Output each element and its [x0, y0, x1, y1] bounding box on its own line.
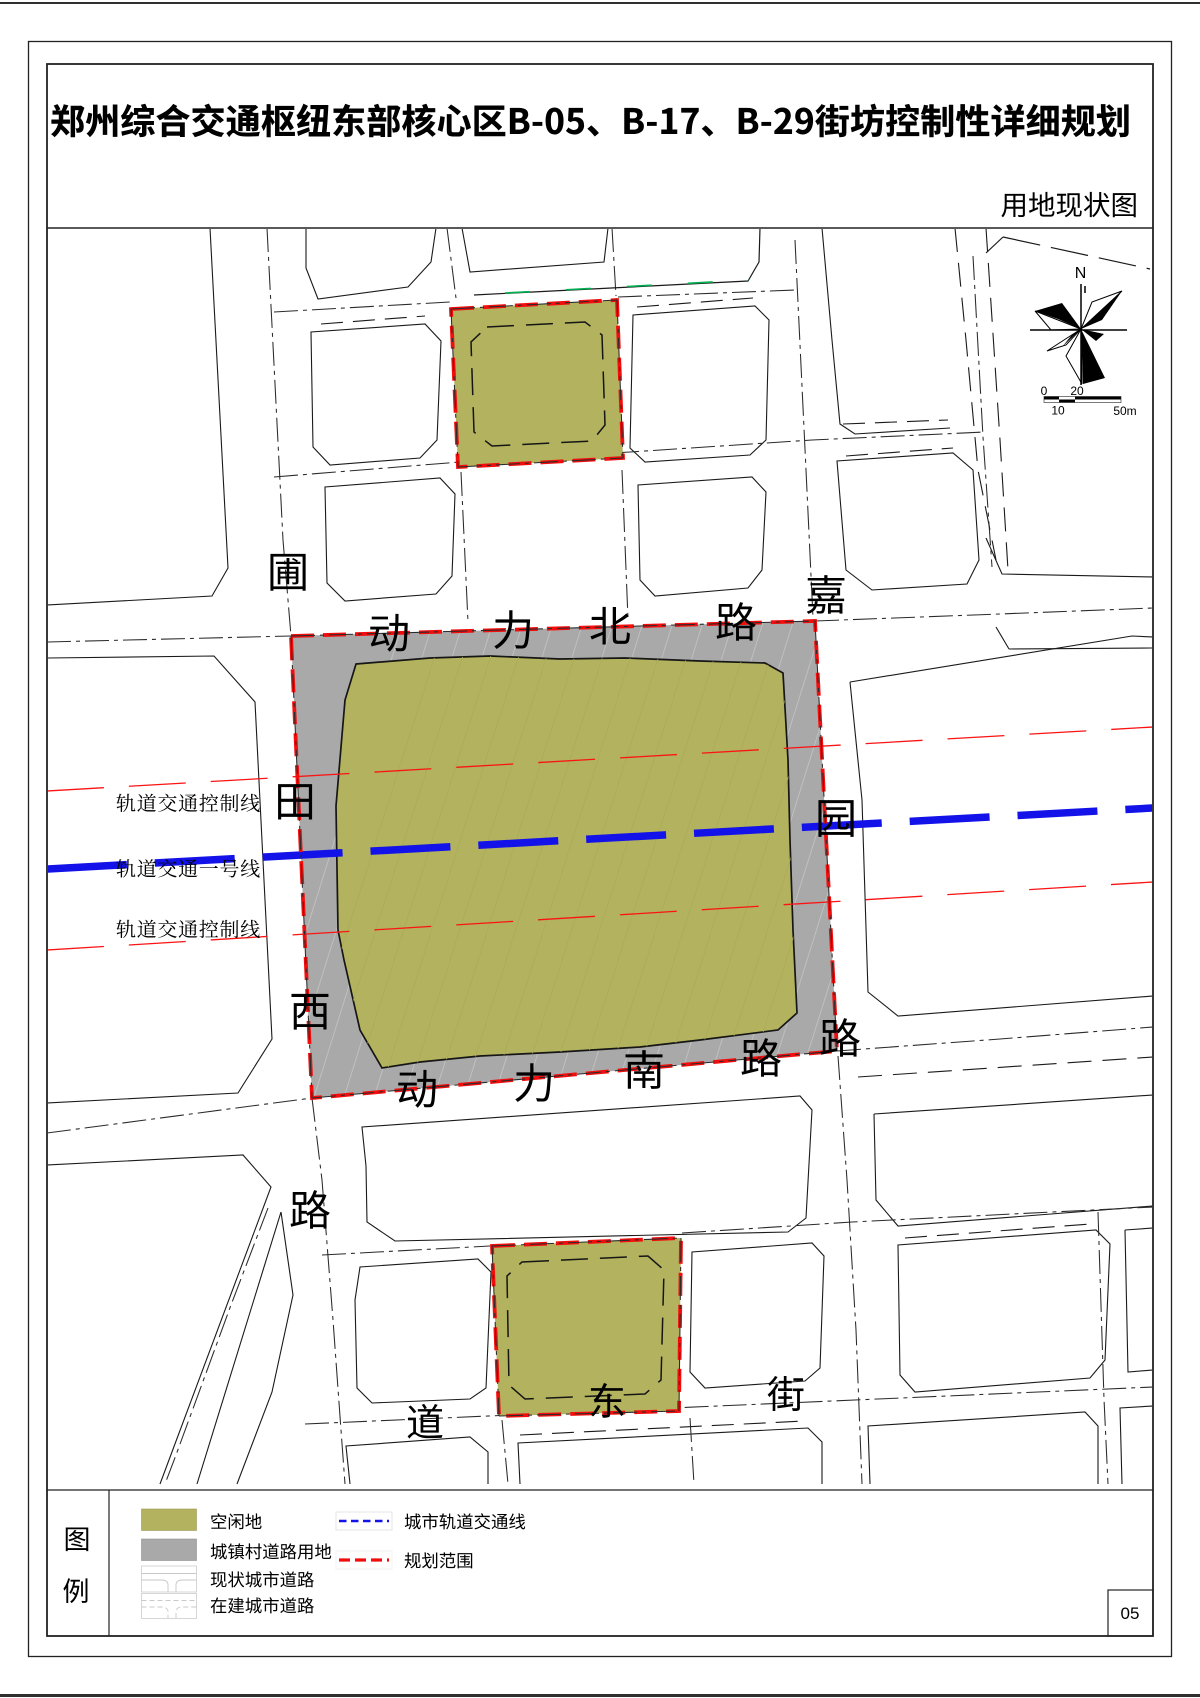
svg-text:0: 0	[1041, 384, 1048, 398]
svg-text:10: 10	[1051, 404, 1065, 418]
svg-text:05: 05	[1121, 1604, 1140, 1623]
svg-text:20: 20	[1070, 384, 1084, 398]
svg-text:50m: 50m	[1113, 404, 1136, 418]
svg-text:N: N	[1075, 265, 1087, 282]
